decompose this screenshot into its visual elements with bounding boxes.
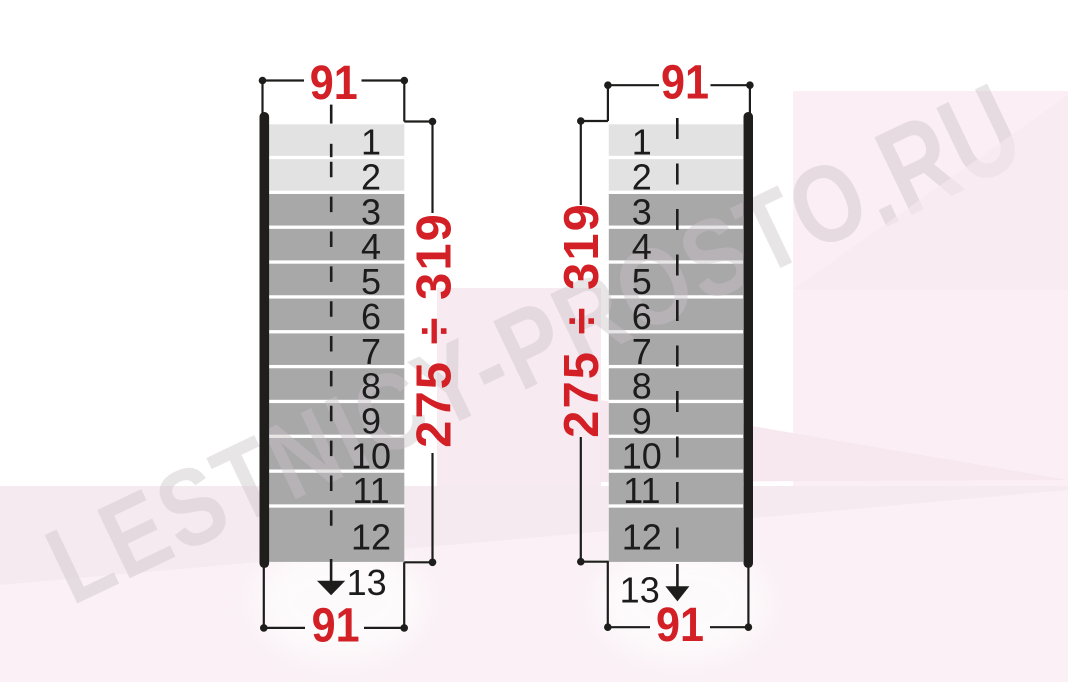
svg-text:13: 13 [620,570,660,611]
svg-text:91: 91 [661,56,709,109]
svg-text:91: 91 [310,57,358,110]
svg-text:13: 13 [347,562,387,603]
svg-text:12: 12 [351,516,391,557]
svg-text:12: 12 [622,516,662,557]
svg-text:275 ÷ 319: 275 ÷ 319 [407,212,461,448]
svg-text:11: 11 [352,470,389,511]
svg-text:11: 11 [623,470,660,511]
svg-text:275 ÷ 319: 275 ÷ 319 [555,202,609,438]
svg-text:91: 91 [312,600,360,653]
svg-text:91: 91 [656,599,704,652]
